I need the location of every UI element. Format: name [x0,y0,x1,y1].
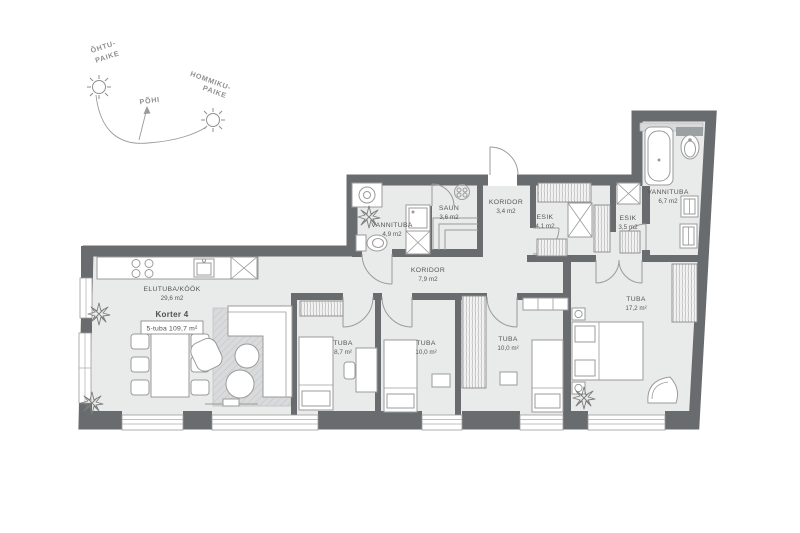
bathroom-sink-icon [681,135,699,159]
window [520,415,563,430]
desk-chair [344,362,355,379]
svg-text:ESIK: ESIK [620,215,637,222]
window [422,415,462,430]
svg-text:4,1 m2: 4,1 m2 [535,223,555,230]
window [212,415,318,430]
shelf [523,298,568,310]
svg-text:TUBA: TUBA [498,336,518,343]
svg-text:KORIDOR: KORIDOR [489,199,523,206]
bathroom-cabinet [680,224,697,248]
window [122,415,183,430]
bed [299,337,333,410]
floor-plan-svg: ÕHTU- PAIKE HOMMIKU- PAIKE PÕHI [0,0,800,533]
apartment-name: Korter 4 [155,310,188,319]
bed [384,340,417,412]
coffee-table [235,344,259,368]
svg-text:KORIDOR: KORIDOR [411,267,445,274]
entrance-door-arc [490,147,518,175]
svg-text:10,0 m²: 10,0 m² [497,345,518,352]
kitchen-furniture [97,257,258,279]
svg-text:SAUN: SAUN [439,205,459,212]
bathtub-icon [645,127,673,185]
svg-text:3,6 m2: 3,6 m2 [439,214,459,221]
svg-text:VANNITUBA: VANNITUBA [371,222,413,229]
window [79,333,91,403]
dining-table [151,330,189,397]
north-arrow-icon [139,106,151,140]
window [80,278,92,318]
left-windows [79,278,92,403]
coat-rack [537,239,567,256]
desk [500,372,517,385]
compass-north-label: PÕHI [139,95,160,107]
window [588,415,665,430]
folding-door-wardrobe-icon [568,203,592,237]
wardrobe [300,301,343,316]
coat-rack [538,183,591,202]
desk [432,374,450,387]
svg-text:29,6 m2: 29,6 m2 [161,295,184,302]
svg-text:8,7 m²: 8,7 m² [334,349,352,356]
svg-text:VANNITUBA: VANNITUBA [647,189,689,196]
built-in-wardrobe [462,296,486,388]
bathroom-cabinet [681,196,698,217]
kitchen-sink-icon [194,259,214,277]
floor-plan-page: ÕHTU- PAIKE HOMMIKU- PAIKE PÕHI [0,0,800,533]
svg-text:TUBA: TUBA [416,340,436,347]
svg-text:4,9 m2: 4,9 m2 [382,231,402,238]
svg-text:TUBA: TUBA [333,340,353,347]
apartment-type: 5-tuba 109,7 m² [147,326,199,333]
svg-text:ESIK: ESIK [537,214,554,221]
svg-text:TUBA: TUBA [626,296,646,303]
nightstand [572,308,585,320]
shower-door-icon [406,231,430,254]
svg-text:ELUTUBA/KÖÖK: ELUTUBA/KÖÖK [143,285,200,293]
coffee-table [226,370,254,398]
svg-text:10,0 m²: 10,0 m² [415,349,436,356]
wardrobe [672,264,697,322]
built-in-wardrobe [594,205,610,252]
washing-machine-icon [352,183,382,207]
desk [356,348,377,392]
fridge-icon [231,257,257,279]
svg-text:7,9 m2: 7,9 m2 [418,276,438,283]
entrance-opening [488,172,517,186]
double-bed [572,322,643,380]
compass: ÕHTU- PAIKE HOMMIKU- PAIKE PÕHI [87,38,233,143]
svg-text:6,7 m2: 6,7 m2 [658,198,678,205]
built-in-wardrobe [620,231,640,253]
svg-text:3,5 m2: 3,5 m2 [618,224,638,231]
bed [532,340,563,412]
svg-text:3,4 m2: 3,4 m2 [496,208,516,215]
folding-door-wardrobe-icon [617,183,640,204]
svg-text:17,2 m²: 17,2 m² [625,305,646,312]
evening-sun-icon [87,75,111,99]
